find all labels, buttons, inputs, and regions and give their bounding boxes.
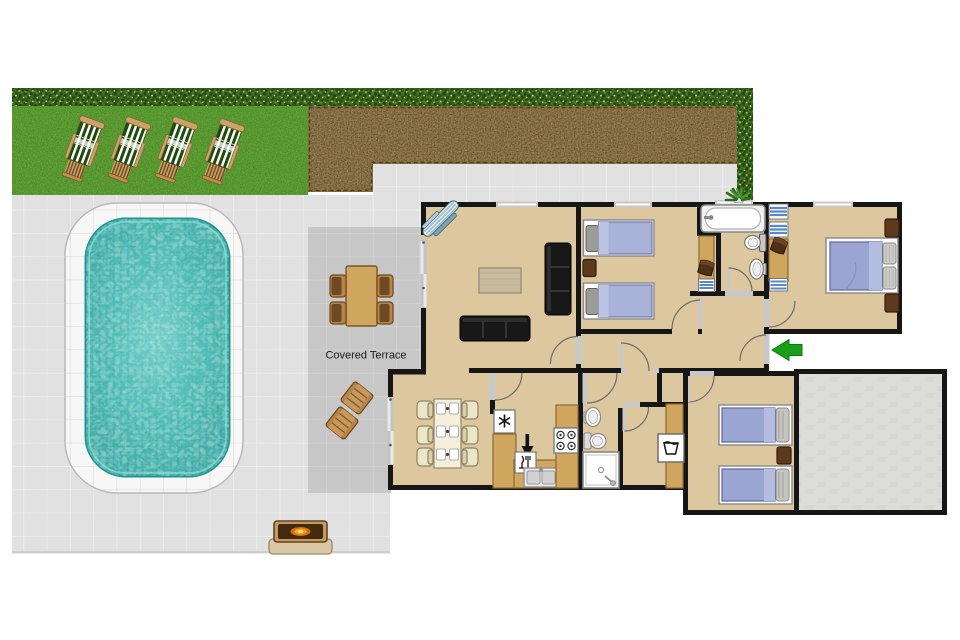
svg-text:Covered Terrace: Covered Terrace — [325, 350, 406, 362]
